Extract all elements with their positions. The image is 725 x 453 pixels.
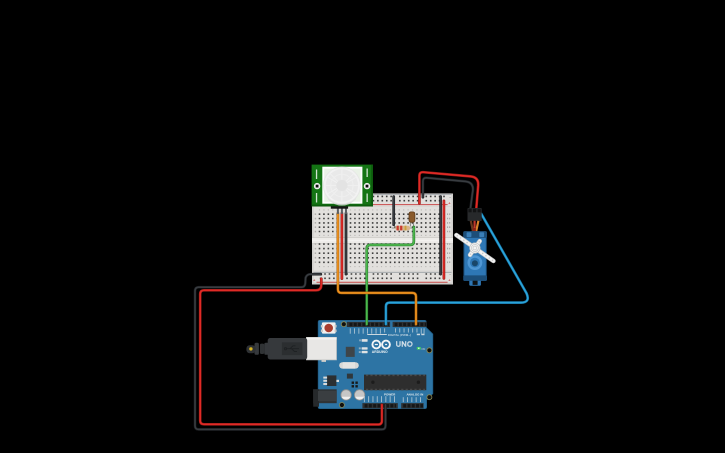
svg-text:ARDUINO: ARDUINO: [372, 350, 388, 354]
svg-text:ANALOG IN: ANALOG IN: [407, 392, 424, 396]
svg-text:ON: ON: [421, 347, 425, 351]
svg-text:UNO: UNO: [396, 340, 413, 349]
svg-text:DIGITAL (PWM~): DIGITAL (PWM~): [388, 333, 411, 337]
svg-text:POWER: POWER: [384, 392, 396, 396]
